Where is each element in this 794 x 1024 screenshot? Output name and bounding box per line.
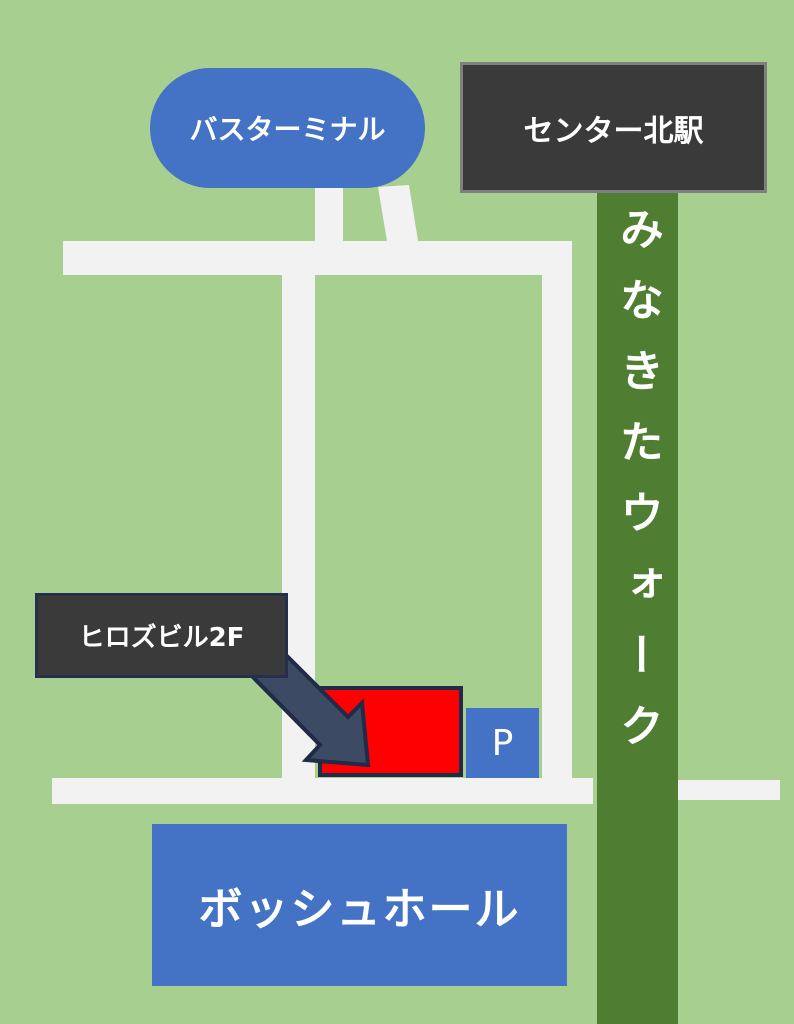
road-bus-leg-left — [315, 185, 343, 241]
parking-badge: P — [466, 708, 539, 778]
destination-sign: ヒロズビル2F — [35, 593, 288, 678]
hall-label: ボッシュホール — [199, 873, 521, 937]
station-sign: センター北駅 — [460, 62, 767, 193]
station-label: センター北駅 — [524, 106, 704, 150]
hall-building: ボッシュホール — [152, 824, 567, 986]
destination-building — [318, 686, 463, 777]
parking-label: P — [492, 723, 514, 764]
bus-terminal-label: バスターミナル — [189, 108, 385, 148]
access-map: みなきたウォーク バスターミナル センター北駅 P ボッシュホール ヒロズビル2… — [0, 0, 794, 1024]
road-top-horizontal — [63, 241, 572, 275]
bus-terminal-pill: バスターミナル — [150, 68, 425, 188]
walkway-strip: みなきたウォーク — [597, 190, 678, 1024]
road-bottom-right-segment — [678, 780, 780, 800]
road-bottom-horizontal — [52, 778, 593, 804]
road-left-vertical — [282, 241, 315, 778]
destination-sign-label: ヒロズビル2F — [79, 617, 245, 654]
walkway-label: みなきたウォーク — [597, 206, 678, 1024]
road-right-vertical — [542, 241, 572, 778]
